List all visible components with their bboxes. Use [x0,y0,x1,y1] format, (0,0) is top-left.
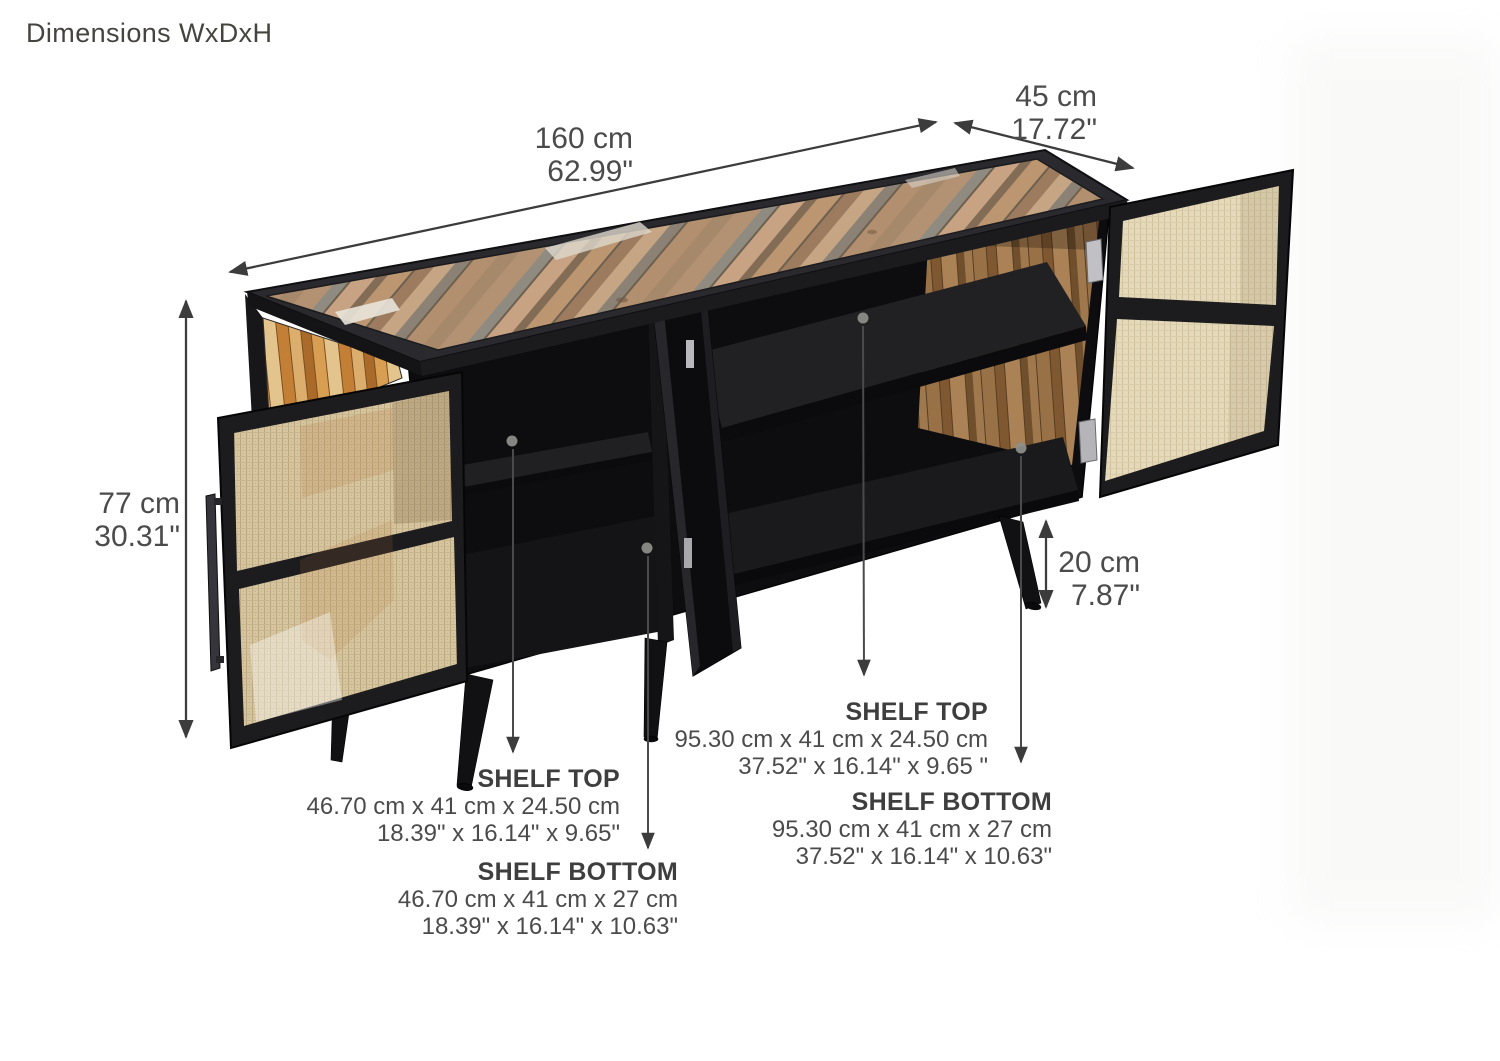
width-dimension-label: 160 cm 62.99" [383,122,633,188]
left-shelf-bottom-label: SHELF BOTTOM 46.70 cm x 41 cm x 27 cm 18… [328,859,678,940]
shelf-cm: 95.30 cm x 41 cm x 24.50 cm [638,726,988,753]
height-dimension-label: 77 cm 30.31" [0,487,180,553]
width-in: 62.99" [383,155,633,188]
left-shelf-top-label: SHELF TOP 46.70 cm x 41 cm x 24.50 cm 18… [270,766,620,847]
shelf-label: SHELF BOTTOM [702,789,1052,816]
dimension-diagram: Dimensions WxDxH 160 cm 62.99" 45 cm 17.… [0,0,1500,1061]
shelf-label: SHELF TOP [270,766,620,793]
middle-door-hinge [686,340,694,368]
shelf-cm: 46.70 cm x 41 cm x 27 cm [328,886,678,913]
depth-in: 17.72" [847,113,1097,146]
shelf-in: 37.52" x 16.14" x 10.63" [702,843,1052,870]
sideboard-illustration [0,0,1500,1061]
shelf-label: SHELF BOTTOM [328,859,678,886]
right-shelf-top-leader [863,326,864,675]
depth-cm: 45 cm [847,80,1097,113]
depth-dimension-label: 45 cm 17.72" [847,80,1097,146]
right-shelf-bottom-label: SHELF BOTTOM 95.30 cm x 41 cm x 27 cm 37… [702,789,1052,870]
shelf-cm: 46.70 cm x 41 cm x 24.50 cm [270,793,620,820]
left-door [206,372,467,748]
height-in: 30.31" [0,520,180,553]
shelf-in: 18.39" x 16.14" x 10.63" [328,913,678,940]
leg-dimension-label: 20 cm 7.87" [890,546,1140,612]
leg-cm: 20 cm [890,546,1140,579]
shelf-label: SHELF TOP [638,699,988,726]
shelf-cm: 95.30 cm x 41 cm x 27 cm [702,816,1052,843]
shelf-in: 18.39" x 16.14" x 9.65" [270,820,620,847]
leg-in: 7.87" [890,579,1140,612]
page-title: Dimensions WxDxH [26,18,272,49]
right-shelf-top-label: SHELF TOP 95.30 cm x 41 cm x 24.50 cm 37… [638,699,988,780]
height-cm: 77 cm [0,487,180,520]
right-door [1100,170,1293,497]
shelf-in: 37.52" x 16.14" x 9.65 " [638,753,988,780]
width-cm: 160 cm [383,122,633,155]
middle-door-hinge [684,538,692,568]
